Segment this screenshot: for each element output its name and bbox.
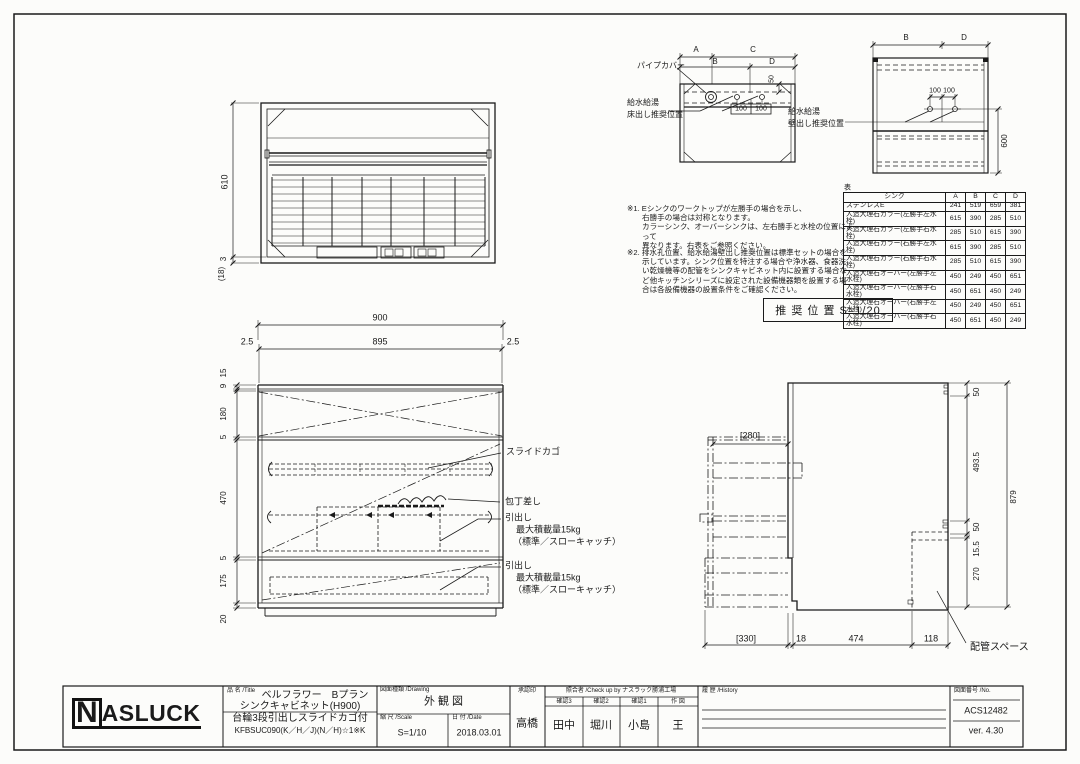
val-b: 249 <box>966 299 986 314</box>
wall-dim-100-2: 100 <box>943 88 955 95</box>
piping-space-label: 配管スペース <box>970 643 1029 653</box>
scale-value: S=1/10 <box>398 729 427 738</box>
title-label: 品 名 /Title <box>227 688 255 694</box>
drawing-type-label: 図面種類 /Drawing <box>380 687 429 693</box>
val-b: 651 <box>966 285 986 300</box>
sink-name: 人造大理石カラー(左勝手左水栓) <box>844 212 946 227</box>
note-2-line: ※2. 排水孔位置、給水給湯壁出し推奨位置は標準セットの場合を <box>627 248 855 257</box>
date-label: 日 付 /Date <box>452 715 482 721</box>
val-d: 249 <box>1006 285 1026 300</box>
side-dim-474: 474 <box>848 635 863 644</box>
val-d: 381 <box>1006 202 1026 212</box>
val-a: 615 <box>946 212 966 227</box>
checker-name: 王 <box>673 721 684 732</box>
sink-name: 人造大理石カラー(右勝手左水栓) <box>844 241 946 256</box>
checker-name: 田中 <box>553 721 575 732</box>
col-header: C <box>986 193 1006 203</box>
side-dim-18: 18 <box>796 635 806 644</box>
val-b: 510 <box>966 255 986 270</box>
slide-basket-label: スライドカゴ <box>506 448 560 457</box>
val-a: 241 <box>946 202 966 212</box>
drawing-number-value: ACS12482 <box>964 707 1008 716</box>
val-d: 390 <box>1006 226 1026 241</box>
val-c: 659 <box>986 202 1006 212</box>
val-c: 285 <box>986 212 1006 227</box>
table-row: 人造大理石オーバー(左勝手左水栓)450249450651 <box>844 270 1026 285</box>
table-header-row: シンク A B C D <box>844 193 1026 203</box>
col-header: シンク <box>844 193 946 203</box>
note-2: ※2. 排水孔位置、給水給湯壁出し推奨位置は標準セットの場合を 示しています。シ… <box>627 248 855 294</box>
product-title-line1: ベルフラワー Bプラン <box>262 691 369 701</box>
plan-depth-dim: 610 <box>221 174 230 189</box>
val-d: 510 <box>1006 212 1026 227</box>
floor-dim-100-1: 100 <box>735 106 747 113</box>
logo-letter-n: N <box>72 698 102 729</box>
val-a: 285 <box>946 255 966 270</box>
drawing-sheet: 610 3 (18) A C B D 50 100 100 パイプカバー 給水給… <box>0 0 1080 764</box>
sink-table-caption: 表 <box>844 185 851 192</box>
val-a: 285 <box>946 226 966 241</box>
product-title-line2: シンクキャビネット(H900) <box>240 702 361 712</box>
note-1-line: カラーシンク、オーバーシンクは、左右勝手と水栓の位置によって <box>627 222 855 240</box>
val-c: 450 <box>986 285 1006 300</box>
date-value: 2018.03.01 <box>456 729 501 738</box>
recommended-position-label: 推 奨 位 置 S=1/20 <box>775 302 880 318</box>
side-dim-50-mid: 50 <box>973 523 981 532</box>
drawer-label-2: 引出し <box>505 562 532 571</box>
drawing-version: ver. 4.30 <box>969 727 1004 736</box>
recommended-position-box: 推 奨 位 置 S=1/20 <box>763 298 893 322</box>
val-d: 651 <box>1006 270 1026 285</box>
note-2-line: ど他キッチンシリーズに設定された設備機器類を設置する場 <box>627 276 855 285</box>
val-c: 450 <box>986 299 1006 314</box>
front-dim-900: 900 <box>372 314 387 323</box>
nasluck-logo: NASLUCK <box>72 698 201 729</box>
drawer-catch-2: （標準／スローキャッチ） <box>513 586 621 595</box>
drawer-capacity-2: 最大積載量15kg <box>516 574 581 583</box>
floor-dim-100-2: 100 <box>755 106 767 113</box>
approval-stamp-label: 承認印 <box>518 688 536 694</box>
check-col-label: 確認1 <box>631 699 646 705</box>
floor-dim-50: 50 <box>769 75 776 83</box>
val-a: 615 <box>946 241 966 256</box>
val-c: 450 <box>986 270 1006 285</box>
val-d: 249 <box>1006 314 1026 329</box>
note-2-line: い乾燥機等の配管をシンクキャビネット内に設置する場合な <box>627 266 855 275</box>
front-dim-175: 175 <box>220 574 228 587</box>
check-col-label: 作 図 <box>671 699 685 705</box>
val-c: 615 <box>986 226 1006 241</box>
floor-supply-label-2: 床出し推奨位置 <box>627 111 683 119</box>
val-c: 450 <box>986 314 1006 329</box>
val-b: 519 <box>966 202 986 212</box>
wall-dim-600: 600 <box>1001 134 1009 147</box>
table-row: 人造大理石カラー(左勝手右水栓)285510615390 <box>844 226 1026 241</box>
sink-name: 人造大理石オーバー(左勝手左水栓) <box>844 270 946 285</box>
side-dim-270: 270 <box>973 567 981 580</box>
floor-dim-c: C <box>750 46 756 54</box>
front-dim-2-5-left: 2.5 <box>241 338 254 347</box>
side-dim-118: 118 <box>924 635 938 644</box>
knife-holder-label: 包丁差し <box>505 498 541 507</box>
drawing-type-value: 外観図 <box>424 697 466 708</box>
note-1: ※1. Eシンクのワークトップが左勝手の場合を示し、 右勝手の場合は対称となりま… <box>627 204 855 250</box>
table-row: 人造大理石カラー(右勝手左水栓)615390285510 <box>844 241 1026 256</box>
val-c: 615 <box>986 255 1006 270</box>
table-row: 人造大理石カラー(右勝手右水栓)285510615390 <box>844 255 1026 270</box>
checkup-label: 照合者 /Check up by ナスラック勝浦工場 <box>566 688 676 694</box>
col-header: B <box>966 193 986 203</box>
front-dim-470: 470 <box>220 491 228 504</box>
side-dim-879: 879 <box>1010 490 1018 503</box>
front-dim-15: 15 <box>220 369 228 378</box>
table-row: ステンレスE241519659381 <box>844 202 1026 212</box>
check-col-label: 確認2 <box>593 699 608 705</box>
history-label: 履 歴 /History <box>702 688 738 694</box>
note-1-line: ※1. Eシンクのワークトップが左勝手の場合を示し、 <box>627 204 855 213</box>
side-dim-280: [280] <box>740 432 760 441</box>
val-a: 450 <box>946 285 966 300</box>
val-d: 510 <box>1006 241 1026 256</box>
front-dim-5b: 5 <box>220 556 228 560</box>
drawer-catch-1: （標準／スローキャッチ） <box>513 538 621 547</box>
val-c: 285 <box>986 241 1006 256</box>
approver-name: 高橋 <box>516 719 538 730</box>
val-b: 390 <box>966 212 986 227</box>
drawer-capacity-1: 最大積載量15kg <box>516 526 581 535</box>
pipe-cover-label: パイプカバー <box>637 62 685 70</box>
sink-name: 人造大理石カラー(右勝手右水栓) <box>844 255 946 270</box>
product-code: KFBSUC090(K／H／J)(N／H)☆1※K <box>235 727 366 735</box>
front-dim-895: 895 <box>372 338 387 347</box>
val-d: 390 <box>1006 255 1026 270</box>
front-dim-5a: 5 <box>220 435 228 439</box>
val-a: 450 <box>946 299 966 314</box>
val-b: 390 <box>966 241 986 256</box>
val-a: 450 <box>946 270 966 285</box>
side-dim-493-5: 493.5 <box>973 452 981 472</box>
drawing-linework <box>0 0 1080 764</box>
sink-name: ステンレスE <box>844 202 946 212</box>
front-dim-20: 20 <box>220 615 228 624</box>
val-b: 651 <box>966 314 986 329</box>
product-title-line3: 台輪3段引出しスライドカゴ付 <box>232 714 368 724</box>
sink-name: 人造大理石カラー(左勝手右水栓) <box>844 226 946 241</box>
table-row: 人造大理石カラー(左勝手左水栓)615390285510 <box>844 212 1026 227</box>
plan-back-dim: (18) <box>218 267 226 281</box>
logo-text: ASLUCK <box>102 701 201 728</box>
front-dim-2-5-right: 2.5 <box>507 338 520 347</box>
floor-supply-label-1: 給水給湯 <box>627 99 659 107</box>
floor-dim-b: B <box>712 58 717 66</box>
check-col-label: 確認3 <box>556 699 571 705</box>
side-dim-50-top: 50 <box>973 388 981 397</box>
side-dim-330: [330] <box>736 635 756 644</box>
wall-dim-d: D <box>961 34 967 42</box>
col-header: D <box>1006 193 1026 203</box>
checker-name: 小島 <box>628 721 650 732</box>
val-a: 450 <box>946 314 966 329</box>
checker-name: 堀川 <box>590 721 612 732</box>
plan-gap-dim: 3 <box>220 257 228 261</box>
drawer-label-1: 引出し <box>505 514 532 523</box>
wall-dim-b: B <box>903 34 908 42</box>
wall-dim-100-1: 100 <box>929 88 941 95</box>
front-dim-9: 9 <box>220 384 228 388</box>
floor-dim-d: D <box>769 58 775 66</box>
front-dim-180: 180 <box>220 407 228 420</box>
drawing-number-label: 図面番号 /No. <box>954 688 991 694</box>
col-header: A <box>946 193 966 203</box>
floor-dim-a: A <box>693 46 698 54</box>
val-d: 651 <box>1006 299 1026 314</box>
val-b: 249 <box>966 270 986 285</box>
val-b: 510 <box>966 226 986 241</box>
scale-label: 縮 尺 /Scale <box>380 715 412 721</box>
wall-supply-label-2: 壁出し推奨位置 <box>788 120 844 128</box>
wall-supply-label-1: 給水給湯 <box>788 108 820 116</box>
side-dim-15-5: 15.5 <box>973 541 981 557</box>
note-2-line: 合は各設備機器の設置条件をご確認ください。 <box>627 285 855 294</box>
